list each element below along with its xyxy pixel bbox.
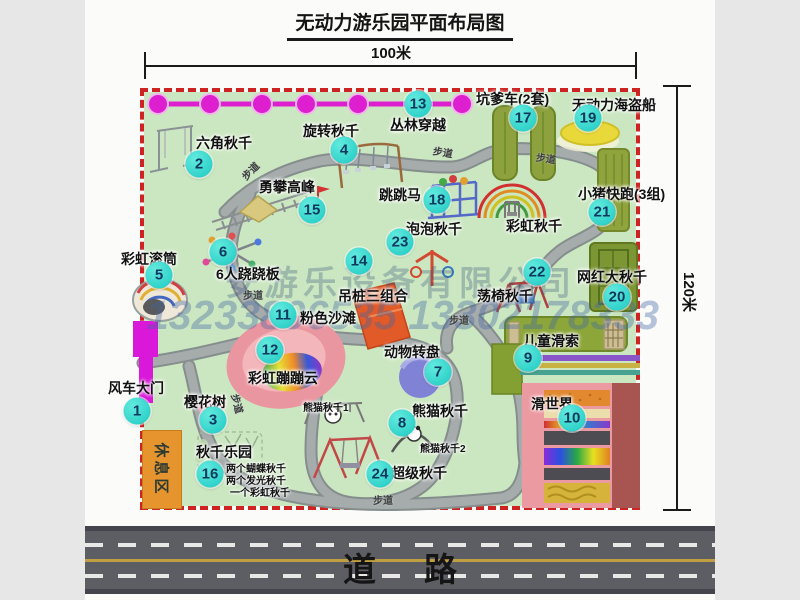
watermark-phones: 13233806535 13302178333 — [146, 292, 659, 339]
dim-top-label: 100米 — [85, 42, 697, 63]
page-title: 无动力游乐园平面布局图 — [85, 8, 715, 41]
rest-area-box: 休息区 — [142, 430, 182, 509]
dim-right-tick-top — [663, 85, 691, 87]
dim-right-tick-bottom — [663, 509, 691, 511]
road: 道路 — [85, 526, 715, 594]
playground-map-page: { "title": "无动力游乐园平面布局图", "dimensions": … — [0, 0, 800, 600]
road-label: 道路 — [85, 543, 715, 591]
page-title-text: 无动力游乐园平面布局图 — [287, 8, 512, 41]
rest-area-label: 休息区 — [152, 442, 173, 496]
dim-right-line — [676, 86, 678, 510]
dim-top-line — [145, 65, 637, 67]
dim-right-label: 120米 — [679, 272, 700, 312]
